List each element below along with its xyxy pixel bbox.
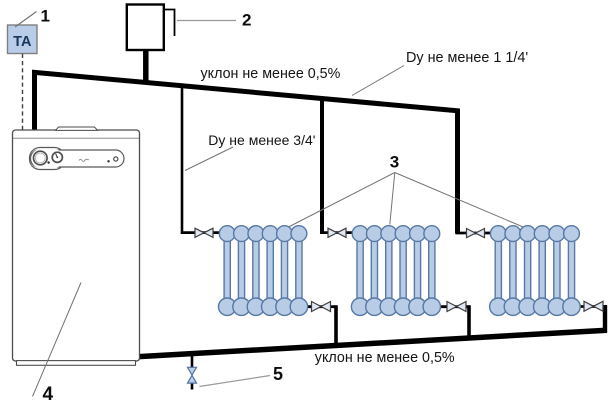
svg-text:уклон не менее 0,5%: уклон не менее 0,5% (315, 350, 455, 366)
svg-text:ТА: ТА (13, 34, 32, 50)
svg-text:уклон не менее 0,5%: уклон не менее 0,5% (201, 66, 341, 82)
svg-text:5: 5 (273, 364, 283, 384)
svg-text:3: 3 (390, 153, 399, 172)
svg-text:1: 1 (41, 6, 50, 25)
svg-text:2: 2 (242, 10, 251, 29)
svg-text:Dy не менее 1 1/4': Dy не менее 1 1/4' (406, 50, 528, 66)
svg-text:Dy не менее 3/4': Dy не менее 3/4' (208, 132, 315, 148)
svg-text:4: 4 (43, 384, 54, 401)
